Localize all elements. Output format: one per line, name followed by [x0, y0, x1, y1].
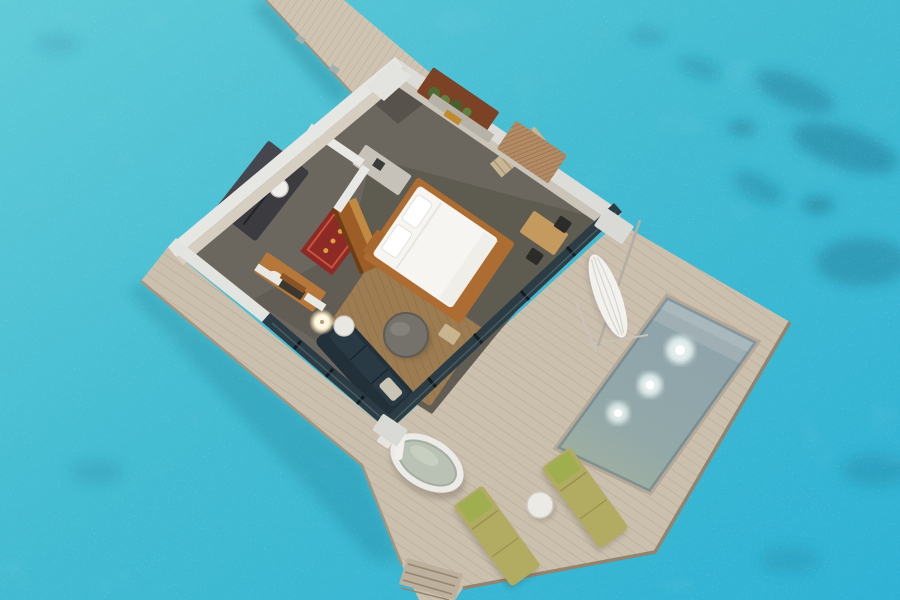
aerial-villa-render	[0, 0, 900, 600]
coffee-table-highlight	[390, 322, 410, 336]
floor-lamp-stem	[320, 320, 324, 324]
pool-light	[646, 381, 655, 390]
scene-canvas	[0, 0, 900, 600]
pool-light	[675, 345, 685, 355]
pool-light	[614, 409, 622, 417]
